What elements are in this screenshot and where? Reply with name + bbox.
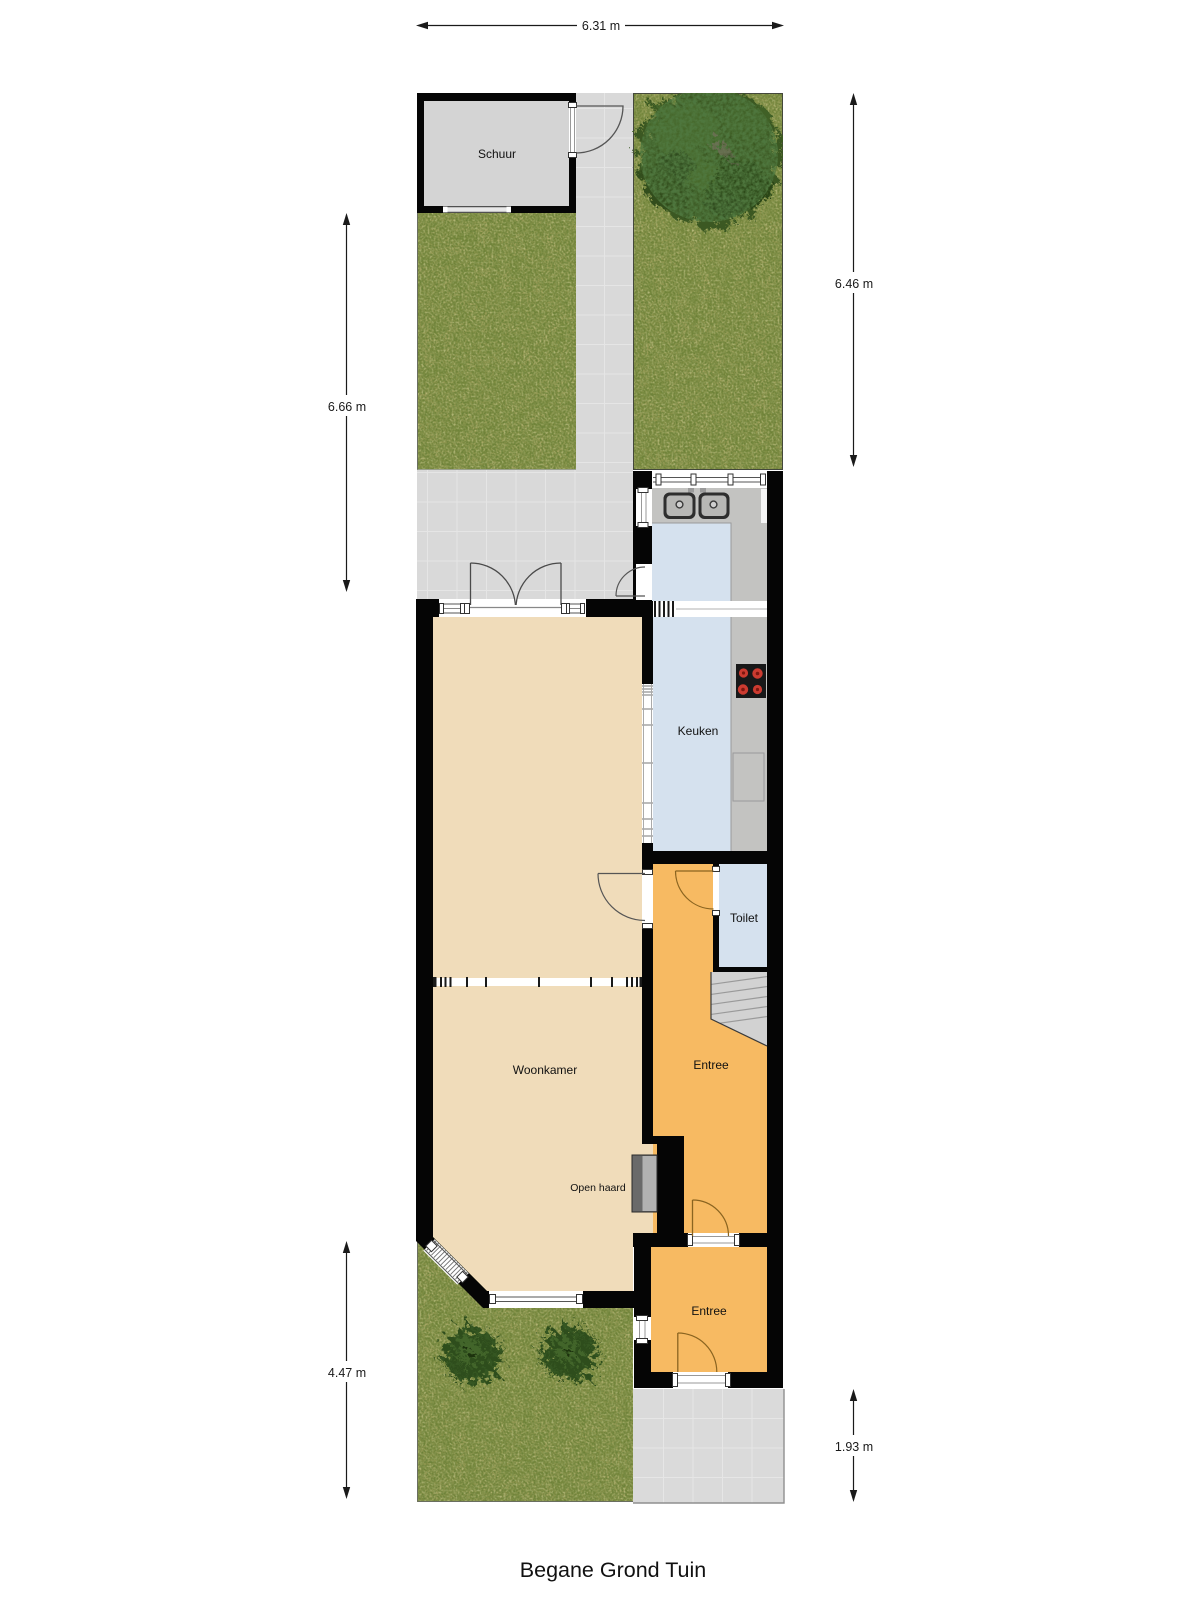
svg-text:Open haard: Open haard xyxy=(570,1182,626,1194)
svg-text:6.31 m: 6.31 m xyxy=(582,19,620,33)
svg-text:6.46 m: 6.46 m xyxy=(835,277,873,291)
svg-text:4.47 m: 4.47 m xyxy=(328,1366,366,1380)
svg-text:Schuur: Schuur xyxy=(478,147,516,161)
svg-text:1.93 m: 1.93 m xyxy=(835,1440,873,1454)
svg-text:Toilet: Toilet xyxy=(730,911,759,925)
svg-text:6.66 m: 6.66 m xyxy=(328,400,366,414)
svg-text:Woonkamer: Woonkamer xyxy=(513,1063,577,1077)
svg-text:Begane Grond Tuin: Begane Grond Tuin xyxy=(520,1558,706,1582)
svg-text:Entree: Entree xyxy=(691,1304,727,1318)
svg-text:Keuken: Keuken xyxy=(678,724,719,738)
svg-text:Entree: Entree xyxy=(693,1058,729,1072)
